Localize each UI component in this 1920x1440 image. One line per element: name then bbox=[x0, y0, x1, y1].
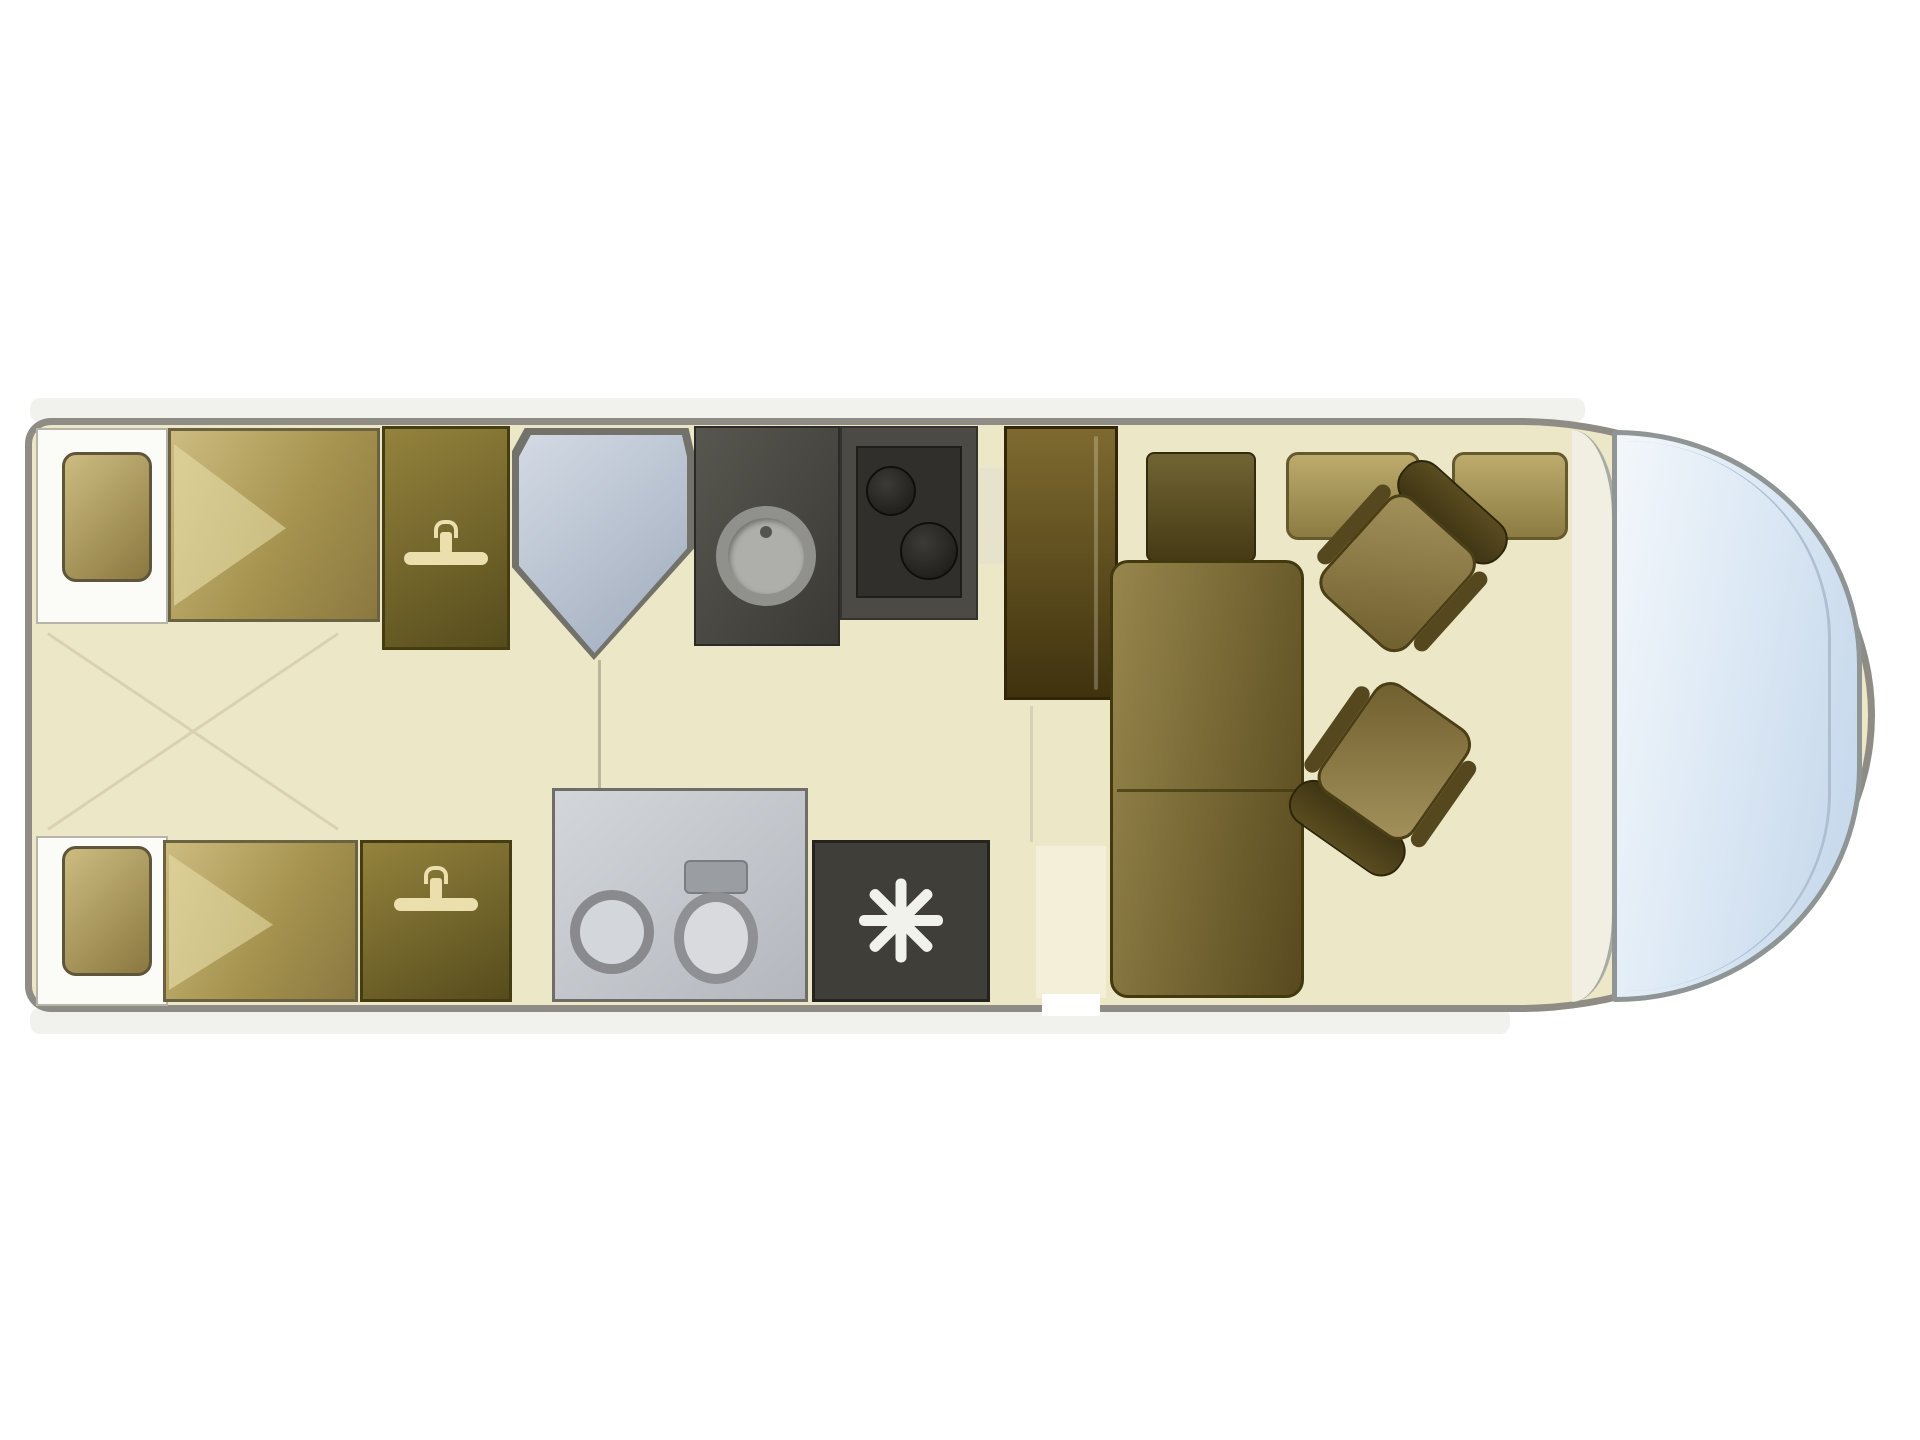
hob-burner-2 bbox=[900, 522, 958, 580]
toilet-tank bbox=[684, 860, 748, 894]
hanger-icon bbox=[394, 898, 478, 911]
fridge bbox=[1004, 426, 1118, 700]
rear-locker-top bbox=[62, 452, 152, 582]
corridor-line bbox=[1030, 706, 1033, 842]
toilet-sink-bowl bbox=[580, 900, 644, 964]
toilet-sink bbox=[570, 890, 654, 974]
hanger-icon bbox=[404, 552, 488, 565]
floorplan-canvas bbox=[0, 0, 1920, 1440]
entrance-door-gap bbox=[1042, 994, 1100, 1016]
hob-panel bbox=[856, 446, 962, 598]
dashboard bbox=[1572, 430, 1616, 1002]
hob-burner-1 bbox=[866, 466, 916, 516]
washbasin-sink bbox=[716, 506, 816, 606]
windshield-inner-line bbox=[1623, 441, 1831, 991]
sink-tap bbox=[760, 526, 772, 538]
toilet-bowl bbox=[674, 892, 758, 984]
counter-end bbox=[978, 468, 1004, 564]
wardrobe-bottom bbox=[360, 840, 512, 1002]
sideboard bbox=[1146, 452, 1256, 562]
entrance-area bbox=[1036, 846, 1106, 998]
rear-locker-bottom bbox=[62, 846, 152, 976]
sofa-cushion-divider bbox=[1117, 789, 1297, 792]
partition-line bbox=[598, 660, 601, 788]
fridge-door-line bbox=[1094, 436, 1098, 690]
windshield bbox=[1612, 430, 1862, 1002]
dressing-area-marking bbox=[48, 634, 338, 830]
lounge-sofa bbox=[1110, 560, 1304, 998]
